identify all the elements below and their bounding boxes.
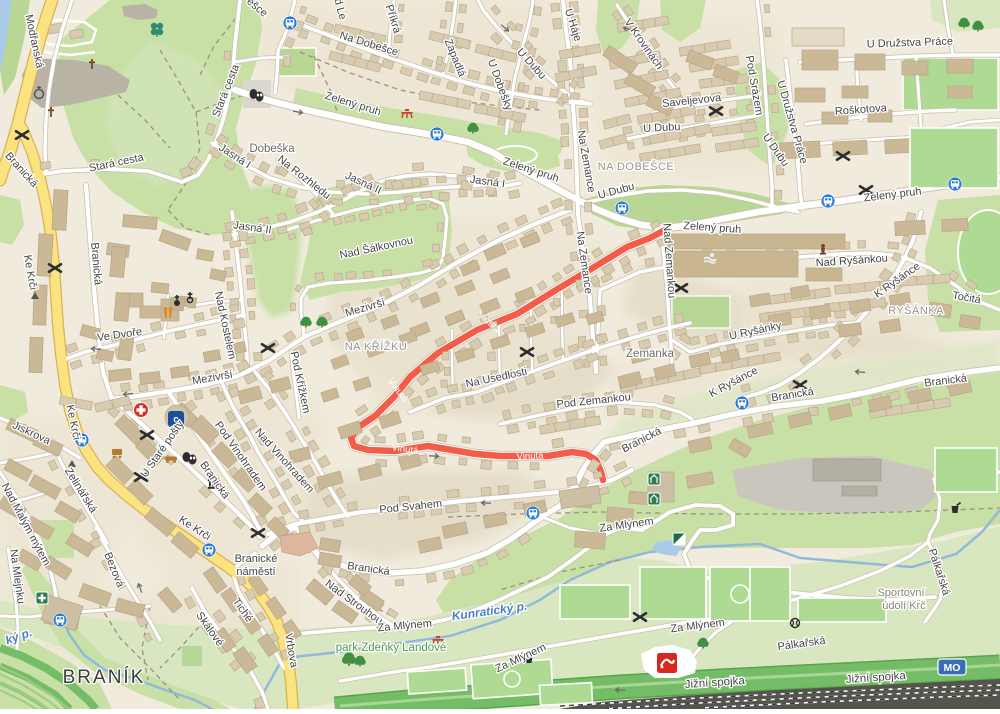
svg-text:Zemanka: Zemanka [626, 348, 675, 360]
svg-text:Branické: Branické [235, 553, 278, 565]
svg-text:BRANÍK: BRANÍK [63, 667, 146, 688]
svg-text:Sportovní: Sportovní [877, 587, 924, 599]
svg-text:park Zdeňky Landové: park Zdeňky Landové [336, 642, 447, 654]
svg-text:NA KŘÍŽKU: NA KŘÍŽKU [345, 340, 408, 353]
svg-text:náměstí: náměstí [236, 566, 275, 578]
svg-text:NA DOBEŠCE: NA DOBEŠCE [598, 160, 675, 173]
svg-text:MO: MO [944, 662, 961, 674]
svg-text:Vinutá: Vinutá [516, 450, 544, 462]
svg-text:údolí Krč: údolí Krč [882, 600, 926, 612]
svg-text:RYŠÁNKA: RYŠÁNKA [888, 304, 944, 317]
svg-text:U Dubu: U Dubu [643, 121, 681, 135]
svg-text:Dobeška: Dobeška [249, 143, 295, 155]
